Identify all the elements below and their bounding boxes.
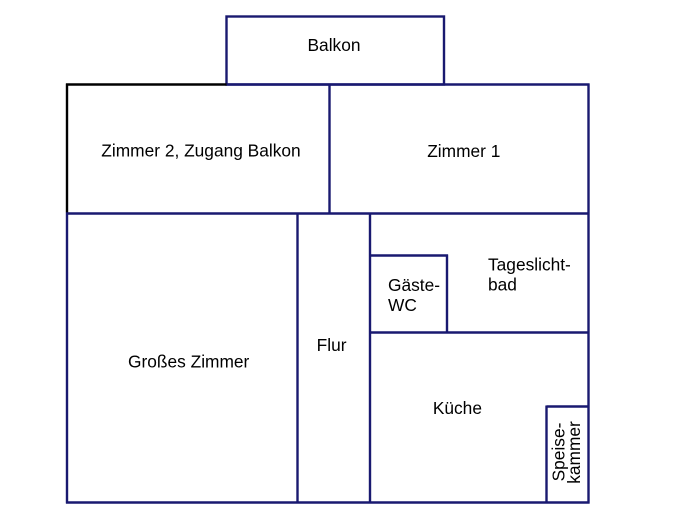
svg-text:Küche: Küche [433, 398, 482, 418]
svg-text:Gäste-: Gäste- [388, 275, 440, 295]
svg-text:Zimmer 1: Zimmer 1 [427, 141, 500, 161]
svg-text:kammer: kammer [564, 421, 584, 484]
svg-text:Balkon: Balkon [308, 35, 361, 55]
svg-text:Großes Zimmer: Großes Zimmer [128, 352, 250, 372]
svg-text:bad: bad [488, 275, 517, 295]
svg-text:WC: WC [388, 295, 417, 315]
svg-text:Flur: Flur [317, 335, 347, 355]
svg-text:Zimmer 2, Zugang Balkon: Zimmer 2, Zugang Balkon [101, 141, 300, 161]
svg-text:Tageslicht-: Tageslicht- [488, 255, 571, 275]
